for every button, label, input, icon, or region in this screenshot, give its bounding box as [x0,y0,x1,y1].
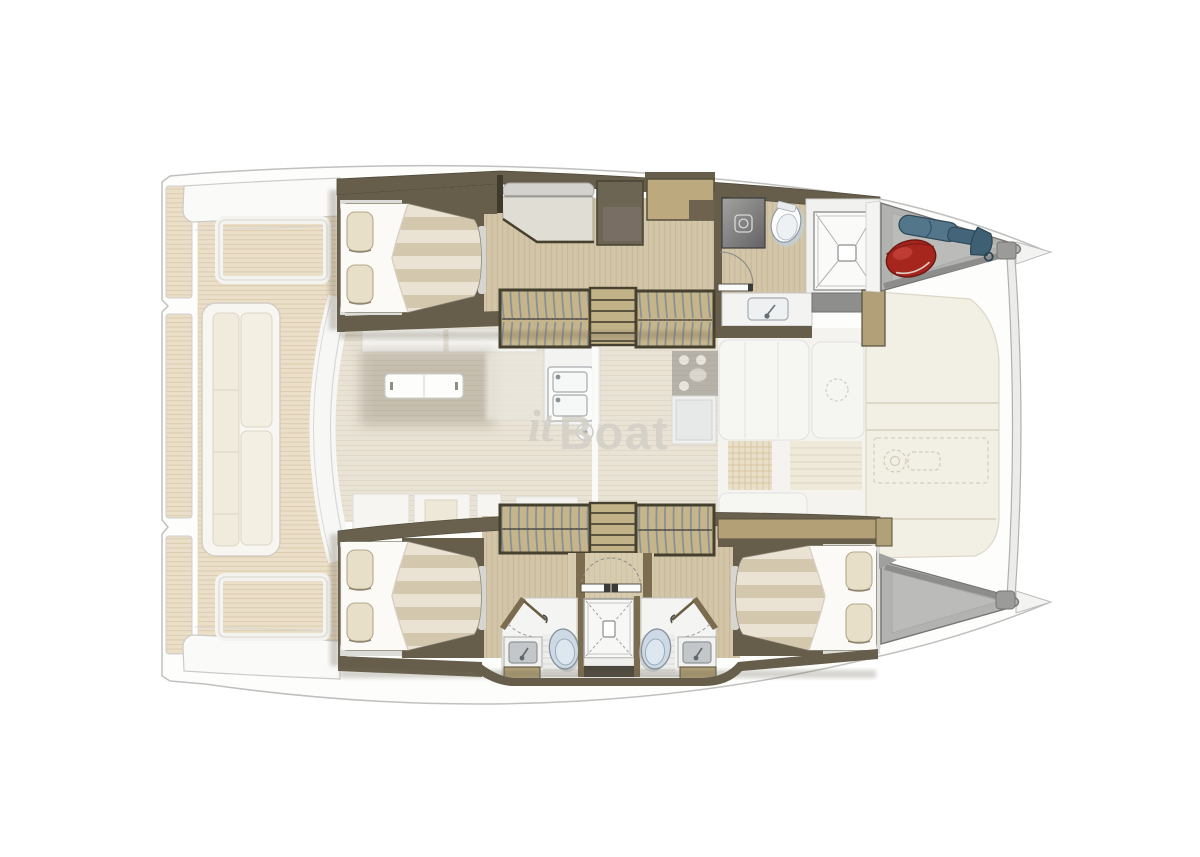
svg-text:Boat: Boat [559,406,669,459]
svg-text:it: it [528,400,555,451]
